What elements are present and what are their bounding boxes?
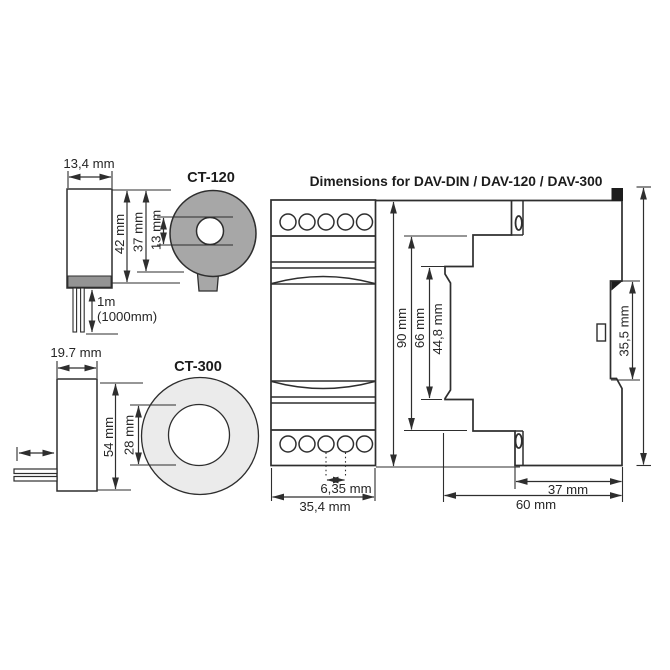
ct120-width-dim-text: 13,4 mm bbox=[63, 156, 114, 171]
terminal-screw-side bbox=[516, 434, 522, 448]
terminal-screws-bottom bbox=[280, 436, 373, 452]
ct300-drawing: 19.7 mm CT-300 54 mm 28 mm bbox=[14, 345, 259, 495]
center-section-height-text: 44,8 mm bbox=[430, 303, 445, 354]
din-rail-cross-section bbox=[597, 324, 606, 341]
terminal-screw bbox=[318, 436, 334, 452]
ct300-wire bbox=[14, 477, 57, 482]
dimensions-diagram: 13,4 mm 1m (1000mm) CT-120 42 mm 37 mm 1 bbox=[0, 0, 670, 670]
ct120-cable-length-text: 1m bbox=[97, 294, 115, 309]
clip-spring-triangle bbox=[612, 282, 623, 291]
din-clip-tab bbox=[612, 188, 624, 201]
terminal-screw bbox=[338, 436, 354, 452]
din-clip-height-text: 35,5 mm bbox=[617, 305, 632, 356]
technical-drawing-page: 13,4 mm 1m (1000mm) CT-120 42 mm 37 mm 1 bbox=[0, 0, 670, 670]
ct300-body bbox=[57, 379, 97, 491]
terminal-screw bbox=[338, 214, 354, 230]
label-window-arc bbox=[272, 277, 375, 284]
ct300-ring-hole bbox=[169, 405, 230, 466]
terminal-pitch-text: 6,35 mm bbox=[320, 481, 371, 496]
terminal-screw bbox=[318, 214, 334, 230]
terminal-screw bbox=[357, 214, 373, 230]
body-height-text: 66 mm bbox=[412, 308, 427, 348]
ct120-id-dim-text: 13 mm bbox=[149, 210, 164, 250]
rear-depth-text: 37 mm bbox=[548, 482, 588, 497]
ct120-height-dim-text: 42 mm bbox=[112, 214, 127, 254]
ct300-label: CT-300 bbox=[174, 359, 222, 375]
diagram-title: Dimensions for DAV-DIN / DAV-120 / DAV-3… bbox=[310, 174, 603, 189]
ct300-id-dim-text: 28 mm bbox=[122, 415, 137, 455]
front-view-body bbox=[271, 200, 376, 466]
ct300-wire bbox=[14, 469, 57, 474]
ct120-ring-hole bbox=[197, 218, 224, 245]
terminal-screw bbox=[299, 436, 315, 452]
ct120-od-dim-text: 37 mm bbox=[131, 212, 146, 252]
side-view-body-fill bbox=[445, 201, 622, 466]
label-window-arc bbox=[272, 382, 375, 389]
ct120-body bbox=[67, 189, 112, 288]
module-front-view: 6,35 mm 35,4 mm bbox=[271, 200, 376, 514]
front-width-text: 35,4 mm bbox=[299, 499, 350, 514]
terminal-screws-top bbox=[280, 214, 373, 230]
terminal-screw bbox=[357, 436, 373, 452]
terminal-screw bbox=[280, 436, 296, 452]
ct120-cable-length-text2: (1000mm) bbox=[97, 309, 157, 324]
terminal-screw bbox=[299, 214, 315, 230]
overall-depth-text: 60 mm bbox=[516, 497, 556, 512]
ct120-drawing: 13,4 mm 1m (1000mm) CT-120 42 mm 37 mm 1 bbox=[63, 156, 256, 334]
ct120-wire bbox=[81, 288, 85, 332]
overall-height-text: 90 mm bbox=[394, 308, 409, 348]
ct120-label: CT-120 bbox=[187, 170, 235, 186]
terminal-screw bbox=[280, 214, 296, 230]
ct300-od-dim-text: 54 mm bbox=[101, 417, 116, 457]
ct300-width-dim-text: 19.7 mm bbox=[50, 345, 101, 360]
ct120-body-cap bbox=[68, 276, 111, 287]
ct120-wire bbox=[73, 288, 77, 332]
terminal-screw-side bbox=[516, 216, 522, 230]
